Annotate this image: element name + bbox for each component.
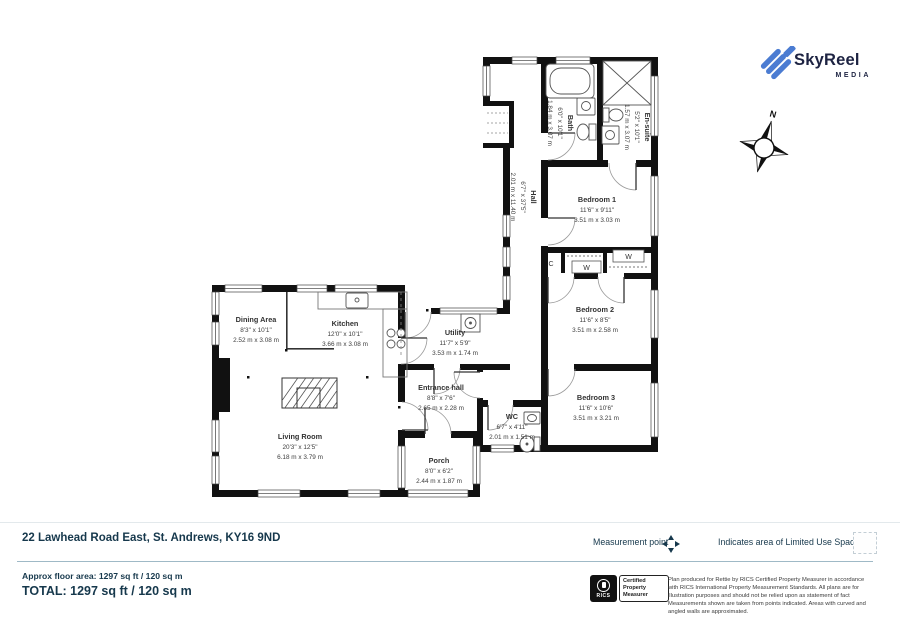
room-label-ensuite: En-suite5'2" x 10'1"1.57 m x 3.07 m	[622, 104, 652, 150]
room-label-dining: Dining Area8'3" x 10'1"2.52 m x 3.08 m	[233, 315, 279, 345]
legend-measurement-point: Measurement point	[593, 537, 668, 547]
room-label-bedroom-1: Bedroom 111'6" x 9'11"3.51 m x 3.03 m	[574, 195, 620, 225]
room-label-wc: WC6'7" x 4'11"2.01 m x 1.51 m	[489, 412, 535, 442]
room-label-porch: Porch8'0" x 6'2"2.44 m x 1.87 m	[416, 456, 462, 486]
room-label-entrance-hall: Entrance hall8'8" x 7'6"2.65 m x 2.28 m	[418, 383, 464, 413]
stove	[387, 329, 395, 337]
rics-lion-icon	[597, 579, 610, 592]
property-address: 22 Lawhead Road East, St. Andrews, KY16 …	[22, 532, 280, 544]
closet-label-w1: W	[583, 265, 590, 272]
room-label-bedroom-3: Bedroom 311'6" x 10'6"3.51 m x 3.21 m	[573, 393, 619, 423]
legend-limited-use: Indicates area of Limited Use Space	[718, 537, 859, 547]
ensuite-toilet	[603, 108, 609, 122]
separator-top	[0, 522, 900, 523]
closet-label-w2: W	[625, 254, 632, 261]
approx-floor-area: Approx floor area: 1297 sq ft / 120 sq m	[22, 571, 182, 581]
measurement-point-icon	[661, 534, 681, 554]
hatched-area	[274, 372, 358, 412]
rics-disclaimer: Plan produced for Rettie by RICS Certifi…	[668, 576, 874, 617]
total-floor-area: TOTAL: 1297 sq ft / 120 sq m	[22, 584, 192, 598]
floorplan-page: SkyReel MEDIA N	[0, 0, 900, 636]
room-label-bath: Bath6'0" x 10'1"1.84 m x 3.07 m	[545, 100, 575, 146]
room-label-hall: Hall6'7" x 37'5"2.01 m x 11.40 m	[508, 173, 538, 222]
cupboard-shelves	[401, 113, 508, 356]
rics-certified-label: Certified Property Measurer	[619, 575, 669, 602]
room-label-living-room: Living Room20'3" x 12'5"6.18 m x 3.79 m	[277, 432, 323, 462]
room-label-bedroom-2: Bedroom 211'6" x 8'5"3.51 m x 2.58 m	[572, 305, 618, 335]
bath-toilet	[589, 124, 596, 140]
separator-line	[17, 561, 873, 562]
closet-label-c: C	[548, 261, 553, 268]
rics-badge: RICS Certified Property Measurer	[590, 575, 669, 602]
room-label-kitchen: Kitchen12'0" x 10'1"3.66 m x 3.08 m	[322, 319, 368, 349]
limited-use-swatch	[853, 532, 877, 554]
rics-logo: RICS	[590, 575, 617, 602]
room-label-utility: Utility11'7" x 5'9"3.53 m x 1.74 m	[432, 328, 478, 358]
